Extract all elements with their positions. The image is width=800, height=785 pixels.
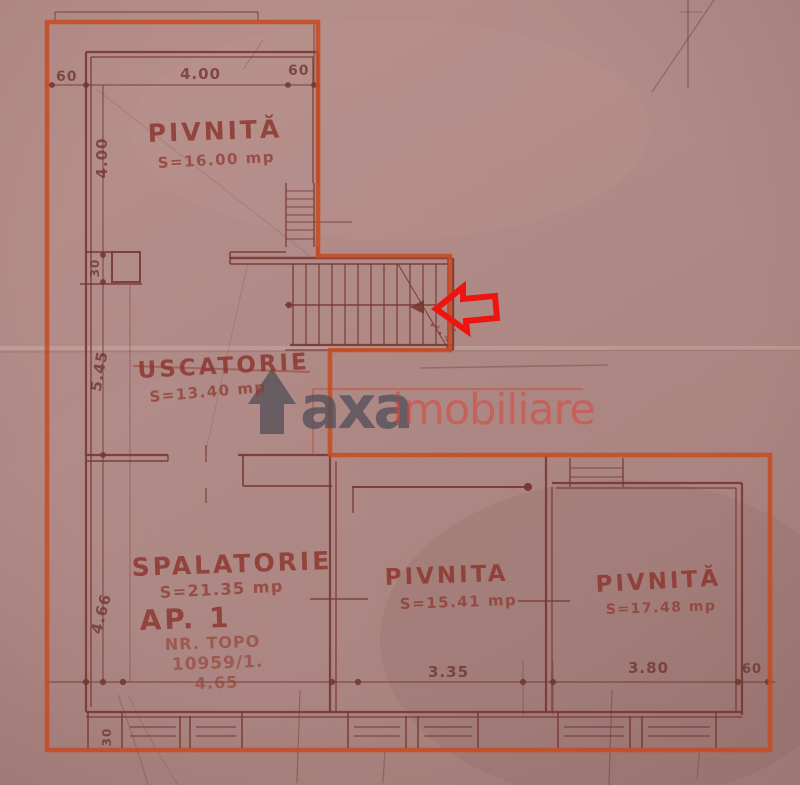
floor-plan-svg: axa imobiliare PIVNITĂ S=16.00 mp USCATO…: [0, 0, 800, 785]
room-label-pivnita-mid: PIVNITA: [384, 561, 509, 591]
dim-left-bottom-wall: 30: [100, 728, 114, 747]
apartment-label: AP. 1: [139, 601, 232, 637]
nr-topo-label: NR. TOPO: [164, 632, 260, 654]
dim-left-pier: 30: [88, 259, 102, 278]
room-label-pivnita-top: PIVNITĂ: [147, 113, 283, 148]
dim-left-upper: 4.00: [93, 137, 111, 178]
front-dimension: 4.65: [194, 672, 238, 693]
dim-top-right-wall: 60: [288, 63, 309, 79]
dim-top-left-wall: 60: [56, 69, 77, 85]
watermark-text-imobiliare: imobiliare: [392, 385, 595, 435]
scanned-floor-plan: axa imobiliare PIVNITĂ S=16.00 mp USCATO…: [0, 0, 800, 785]
dim-bottom-mid-span: 3.35: [428, 663, 469, 681]
topo-number: 10959/1.: [171, 652, 263, 675]
dim-bottom-right-span: 3.80: [628, 659, 669, 677]
dim-top-span: 4.00: [180, 65, 221, 83]
dim-bottom-right-wall: 60: [742, 662, 762, 677]
